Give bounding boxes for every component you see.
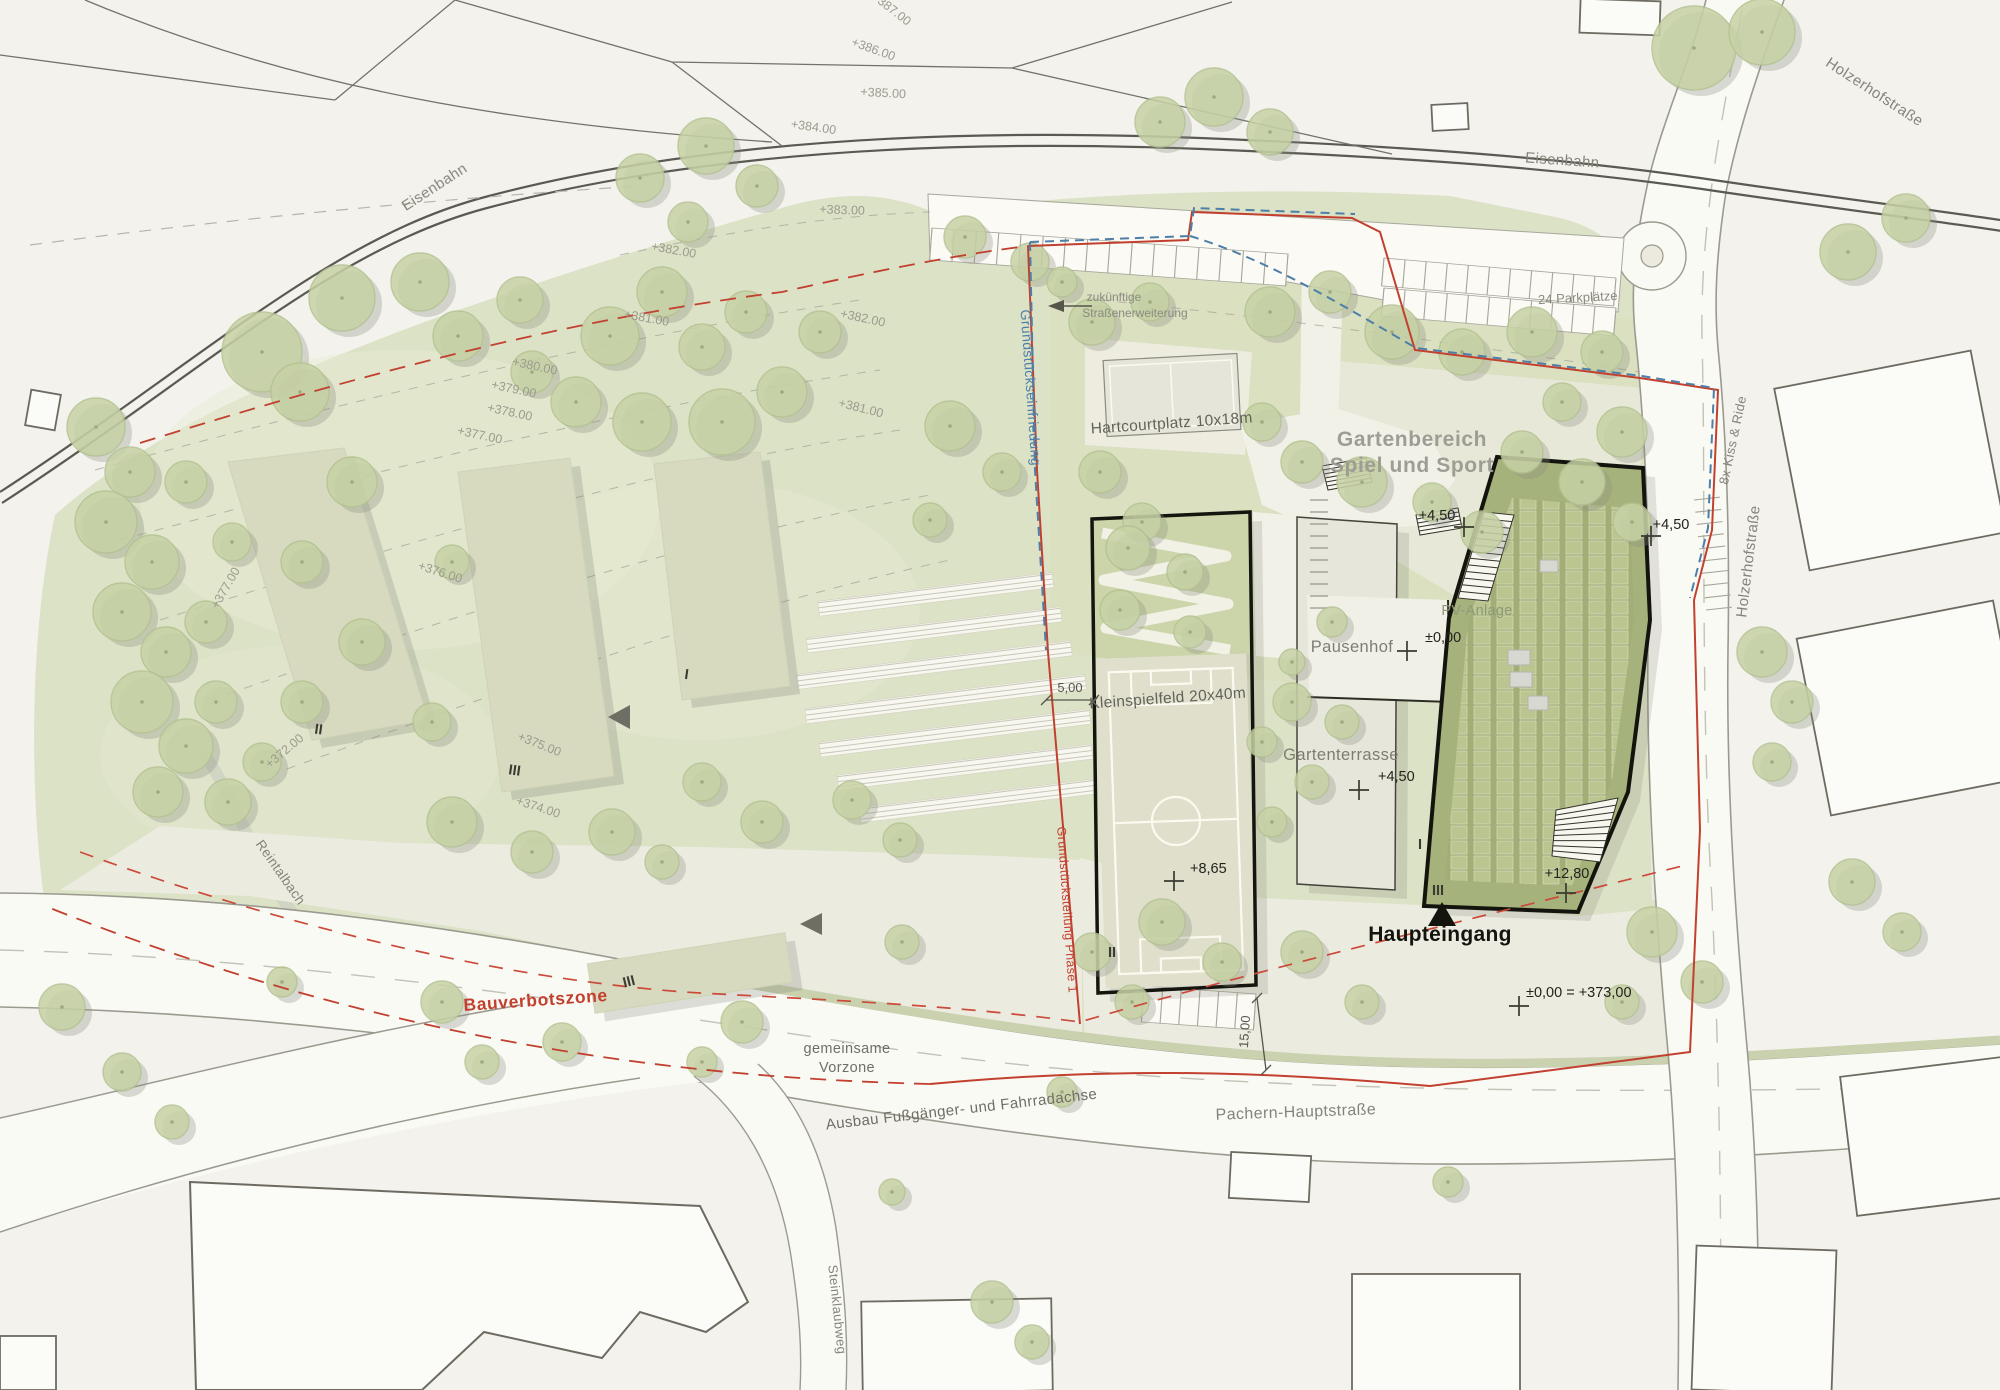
label-gartenterrasse: Gartenterrasse [1283,746,1399,764]
building-context-s4 [1692,1246,1837,1390]
building-context-s2 [1229,1152,1311,1202]
label-gartenbereich-1: Gartenbereich [1337,428,1487,451]
label-zukuenftig-2: Straßenerweiterung [1082,306,1187,320]
label-pv-anlage: PV-Anlage [1441,603,1512,619]
building-context-e1 [1774,351,2000,571]
height-marker-label: +4,50 [1653,517,1690,533]
storey-label: III [1432,883,1444,899]
building-context-e2 [1797,601,2000,816]
label-pausenhof: Pausenhof [1311,638,1394,656]
label-vorzone-1: gemeinsame [803,1041,890,1057]
dimension-label: 5,00 [1057,680,1082,695]
label-zukuenftig-1: zukünftige [1087,290,1142,304]
dimension-label: 15,00 [1236,1015,1253,1049]
building-hut-w [25,390,61,431]
height-marker-label: ±0,00 = +373,00 [1526,985,1632,1001]
label-gartenbereich-2: Spiel und Sport [1330,454,1494,477]
site-plan: +4,50+4,50±0,00+4,50+8,65+12,80±0,00 = +… [0,0,2000,1390]
height-marker-label: ±0,00 [1425,630,1461,646]
turning-circle-island [1641,245,1663,267]
building-context-s3 [1352,1274,1520,1390]
building-context-se [1840,1056,2000,1216]
storey-label: I [1418,837,1422,853]
storey-label: II [1108,945,1116,961]
height-marker-label: +4,50 [1419,508,1456,524]
label-haupteingang: Haupteingang [1368,923,1512,946]
storey-label: III [507,762,521,780]
contour-label: +385.00 [860,85,906,101]
building-context-ne [1431,103,1468,131]
building-context-n [1579,0,1660,35]
building-context-swc [0,1336,56,1390]
site-plan-canvas: +4,50+4,50±0,00+4,50+8,65+12,80±0,00 = +… [0,0,2000,1390]
height-marker-label: +12,80 [1545,866,1590,882]
contour-label: +383.00 [819,202,865,218]
height-marker-label: +4,50 [1378,769,1415,785]
height-marker-label: +8,65 [1190,861,1227,877]
label-vorzone-2: Vorzone [819,1060,875,1076]
